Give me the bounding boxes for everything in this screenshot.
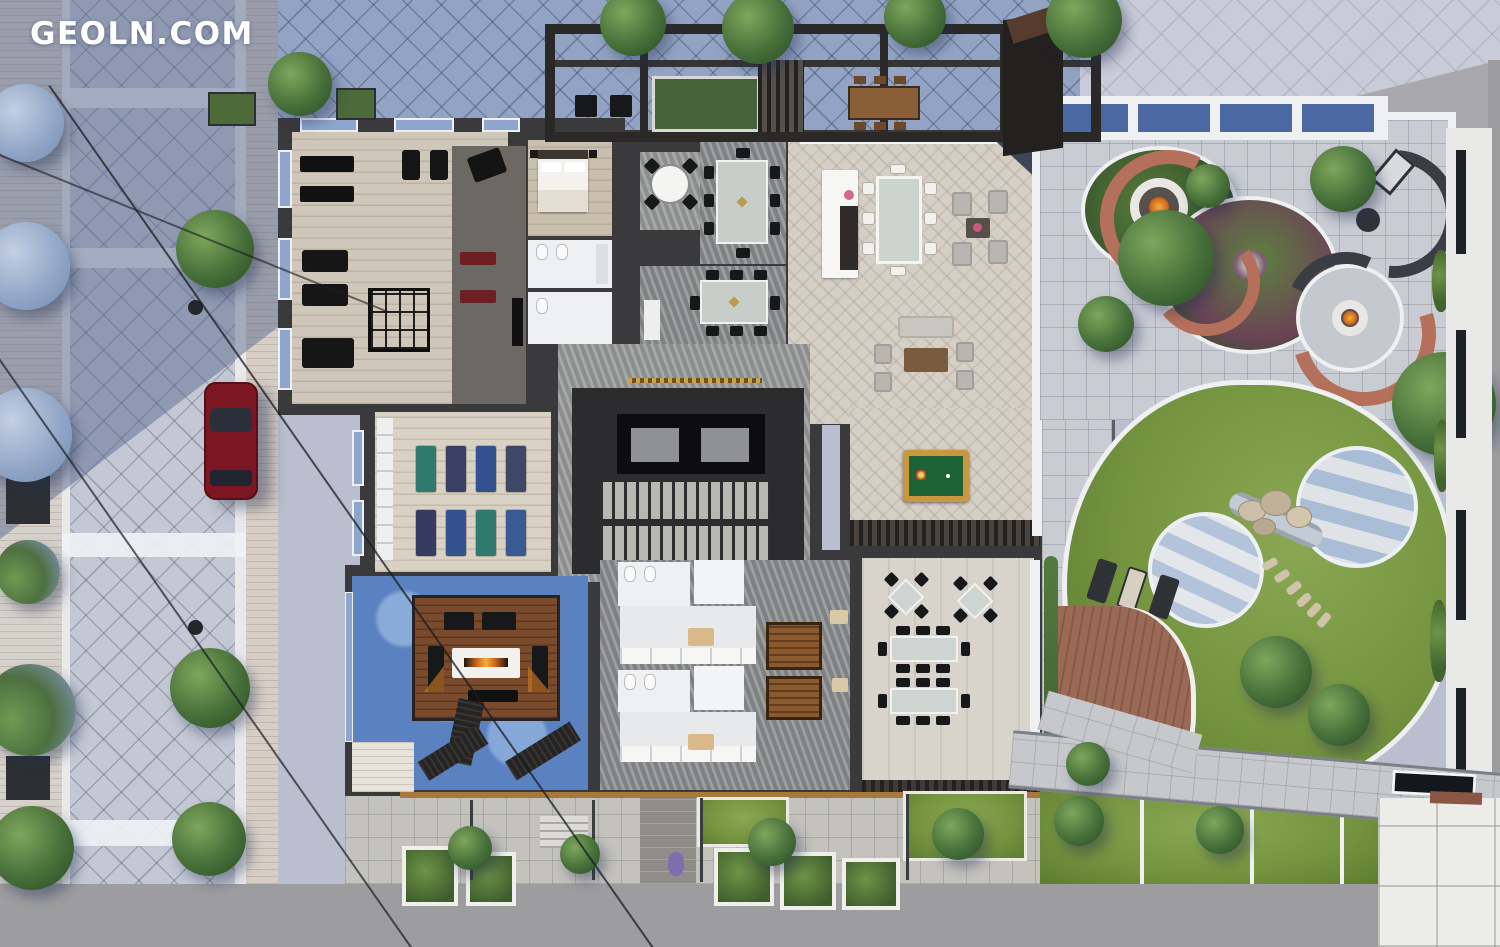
chair — [924, 212, 937, 225]
yoga-mat — [476, 510, 496, 556]
terrace-chair — [575, 95, 597, 117]
chair — [704, 222, 714, 235]
coffee-table — [904, 348, 948, 372]
wood-bench — [688, 734, 714, 750]
yoga-mat — [446, 446, 466, 492]
tree-planter — [6, 756, 50, 800]
entry-path — [640, 798, 696, 884]
chair — [874, 76, 886, 84]
fireplace-flame — [464, 658, 508, 667]
chair — [862, 242, 875, 255]
armchair — [988, 190, 1008, 214]
chair — [754, 270, 767, 280]
chair — [704, 194, 714, 207]
flower-vase — [844, 190, 854, 200]
glass-wall — [1032, 408, 1042, 536]
car-windshield — [210, 408, 252, 432]
chair — [690, 296, 700, 310]
armchair — [956, 342, 974, 362]
weight-machine — [302, 338, 354, 368]
terrace-planter — [652, 76, 760, 132]
sauna — [766, 622, 822, 670]
chair — [924, 242, 937, 255]
tree — [748, 818, 796, 866]
armchair — [956, 370, 974, 390]
planter-divider — [1140, 790, 1144, 884]
tree — [1196, 806, 1244, 854]
chair — [854, 122, 866, 130]
red-bench — [460, 290, 496, 303]
flower-vase — [973, 223, 982, 232]
tree — [170, 648, 250, 728]
deck-cushion — [444, 612, 474, 630]
gym-window — [278, 150, 292, 208]
neighbor-window — [1456, 150, 1466, 254]
slat-screen — [850, 520, 1040, 546]
round-table — [652, 166, 688, 202]
crosswalk — [62, 533, 246, 557]
tree — [172, 802, 246, 876]
chair — [878, 642, 887, 656]
flower-bush — [668, 852, 684, 876]
roof-bench — [1430, 791, 1482, 805]
toilet — [644, 674, 656, 690]
pool-patio — [352, 742, 414, 792]
toilet — [536, 298, 548, 314]
skylight-panel — [1220, 104, 1292, 132]
long-table — [890, 636, 958, 662]
storage-shelf — [377, 418, 393, 562]
chair — [961, 642, 970, 656]
gym-window — [482, 118, 520, 132]
chair — [736, 248, 750, 258]
toilet — [536, 244, 548, 260]
tree — [932, 808, 984, 860]
gym-window — [278, 328, 292, 390]
chair — [916, 678, 930, 687]
tree — [1186, 164, 1230, 208]
blanket — [538, 190, 588, 212]
red-bench — [460, 252, 496, 265]
towel-stack — [832, 678, 848, 692]
kitchenette — [644, 300, 660, 340]
planter-box — [208, 92, 256, 126]
tree — [1078, 296, 1134, 352]
chair — [961, 694, 970, 708]
chair — [736, 148, 750, 158]
chair — [706, 270, 719, 280]
chair — [936, 664, 950, 673]
chair — [924, 182, 937, 195]
tree — [1308, 684, 1370, 746]
yoga-mats — [416, 446, 528, 558]
chair — [754, 326, 767, 336]
wood-bench — [688, 628, 714, 646]
yoga-mat — [476, 446, 496, 492]
armchair — [952, 192, 972, 216]
elevator-car — [697, 424, 753, 466]
chair — [770, 222, 780, 235]
treadmill — [300, 156, 354, 172]
chair — [896, 664, 910, 673]
dumbbell-rack — [512, 298, 523, 346]
chair — [890, 164, 906, 174]
neighbor-window — [1456, 510, 1466, 620]
armchair — [874, 372, 892, 392]
street-lamp — [188, 620, 203, 635]
chair — [770, 166, 780, 179]
weight-machine — [302, 250, 348, 272]
exercise-bike — [430, 150, 448, 180]
deck-cushion — [482, 612, 516, 630]
weight-machine — [302, 284, 348, 306]
neighbor-window — [1456, 330, 1466, 438]
tree — [1066, 742, 1110, 786]
cue-ball — [946, 474, 950, 478]
chair — [770, 296, 780, 310]
chair — [874, 122, 886, 130]
tree — [268, 52, 332, 116]
play-circle — [1296, 446, 1418, 568]
chair — [936, 626, 950, 635]
chair — [916, 626, 930, 635]
yoga-mat — [506, 446, 526, 492]
pillow — [541, 162, 561, 172]
treadmill — [300, 186, 354, 202]
chair — [854, 76, 866, 84]
car-rear-window — [210, 470, 252, 486]
toilet — [624, 674, 636, 690]
neighbor-wall — [1446, 128, 1492, 848]
long-table — [890, 688, 958, 714]
gym-window — [278, 238, 292, 300]
chair — [706, 326, 719, 336]
brass-trim — [628, 378, 762, 383]
street-lamp — [188, 300, 203, 315]
terrace-chair — [610, 95, 632, 117]
railing — [700, 798, 703, 882]
shower-room — [694, 666, 744, 710]
exercise-bike — [402, 150, 420, 180]
chair — [730, 326, 743, 336]
planter-box — [336, 88, 376, 120]
armchair — [874, 344, 892, 364]
chair — [896, 626, 910, 635]
elevator-car — [627, 424, 683, 466]
chair — [896, 716, 910, 725]
chair — [936, 716, 950, 725]
chair — [894, 76, 906, 84]
chair — [916, 716, 930, 725]
tree — [448, 826, 492, 870]
yoga-mat — [416, 446, 436, 492]
chair — [878, 694, 887, 708]
squat-rack-cage — [368, 288, 430, 352]
chair — [862, 182, 875, 195]
shower-room — [694, 560, 744, 604]
yoga-window — [352, 500, 364, 556]
chair — [704, 166, 714, 179]
tree — [1240, 636, 1312, 708]
nightstand — [530, 150, 538, 158]
tree — [560, 834, 600, 874]
stair-landing — [600, 519, 770, 526]
vanity-counter — [596, 244, 608, 284]
planter — [842, 858, 900, 910]
outdoor-table — [848, 86, 920, 120]
yoga-mat — [446, 510, 466, 556]
bed-headboard — [538, 150, 588, 159]
side-table — [1356, 208, 1380, 232]
sauna — [766, 676, 822, 720]
gym-window — [300, 118, 358, 132]
yoga-mat — [506, 510, 526, 556]
slat-screen — [758, 60, 804, 132]
chair — [770, 194, 780, 207]
chair — [862, 212, 875, 225]
chair — [890, 266, 906, 276]
skylight-panel — [1138, 104, 1210, 132]
gym-window — [394, 118, 454, 132]
boulder — [1252, 518, 1276, 536]
toilet — [556, 244, 568, 260]
tree — [176, 210, 254, 288]
gym-floor-dark — [452, 146, 526, 404]
chair — [896, 678, 910, 687]
tree — [1054, 796, 1104, 846]
pillow — [565, 162, 585, 172]
terrace-dining-floor — [862, 558, 1034, 790]
towel-stack — [830, 610, 848, 624]
chair — [894, 122, 906, 130]
toilet — [644, 566, 656, 582]
railing — [906, 794, 909, 880]
tree — [1118, 210, 1214, 306]
nightstand — [589, 150, 597, 158]
armchair — [988, 240, 1008, 264]
boulder — [1286, 506, 1312, 528]
armchair — [952, 242, 972, 266]
skylight-panel — [1302, 104, 1374, 132]
tree-planter — [6, 476, 50, 524]
deck-bench — [468, 690, 518, 702]
site-watermark: GEOLN.COM — [30, 16, 254, 52]
flat-roof — [1378, 798, 1500, 947]
vanity-counter — [620, 648, 756, 664]
pool-window — [345, 592, 353, 742]
chair — [730, 270, 743, 280]
island-panel — [840, 206, 858, 270]
chair — [916, 664, 930, 673]
yoga-window — [352, 430, 364, 486]
billiard-rack — [916, 470, 926, 480]
toilet — [624, 566, 636, 582]
dining-table — [876, 176, 922, 264]
chair — [936, 678, 950, 687]
tree — [1310, 146, 1376, 212]
planter — [780, 852, 836, 910]
sofa — [898, 316, 954, 338]
floor-plan-render: GEOLN.COM — [0, 0, 1500, 947]
yoga-mat — [416, 510, 436, 556]
